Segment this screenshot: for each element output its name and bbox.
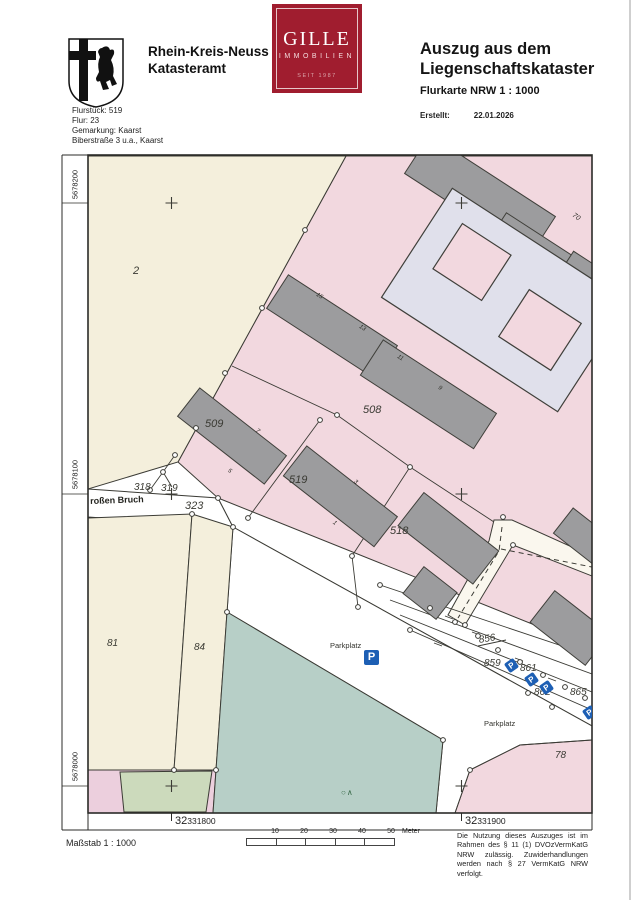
grid-easting: 331900 [477,816,505,826]
house-number-9: 9 [437,385,443,392]
tree-symbol: ○∧ [341,788,354,797]
scale-tick-label-20: 20 [294,828,314,835]
house-number-13: 13 [358,324,367,333]
grid-easting: 331800 [187,816,215,826]
scale-bar [246,838,395,846]
grid-label-north-1: 5678200 [71,165,80,205]
parcel-label-319: 319 [161,483,178,494]
house-number-5: 5 [226,468,232,475]
parcel-label-856: 856 [478,632,496,645]
parkplatz-label-2: Parkplatz [484,719,515,728]
parking-icon: P [524,672,539,687]
scan-edge-line [629,0,631,900]
parcel-label-318: 318 [134,482,151,493]
scale-tick [276,839,277,845]
scale-tick-label-30: 30 [323,828,343,835]
parcel-label-509: 509 [205,418,223,430]
parcel-label-84: 84 [194,642,205,653]
map-label-layer: 2 318 319 323 roßen Bruch 509 508 519 51… [88,155,592,813]
scale-tick-label-50: 50 [381,828,401,835]
house-number-15: 15 [315,292,324,301]
parcel-label-518: 518 [390,525,408,537]
grid-label-north-2: 5678100 [71,455,80,495]
grid-zone: 32 [465,815,477,827]
scale-label: Maßstab 1 : 1000 [66,838,136,848]
parking-icon: P [504,658,519,673]
parcel-label-865: 865 [570,687,587,698]
street-name-label: roßen Bruch [90,494,144,506]
house-number-3: 3 [352,479,358,486]
cadastral-extract-page: Rhein-Kreis-Neuss Katasteramt Flurstück:… [0,0,636,900]
parking-icon: P [582,705,592,720]
parcel-label-519: 519 [289,474,307,486]
scale-tick-label-10: 10 [265,828,285,835]
grid-label-east-1: 32331800 [175,815,216,827]
parcel-label-81: 81 [107,638,118,649]
grid-zone: 32 [175,815,187,827]
parkplatz-label-1: Parkplatz [330,641,361,650]
parking-icon: P [364,650,379,665]
parcel-label-323: 323 [185,500,203,512]
parcel-label-859: 859 [484,658,501,669]
parcel-label-78: 78 [555,750,566,761]
scale-tick [305,839,306,845]
grid-label-east-2: 32331900 [465,815,506,827]
scale-tick [335,839,336,845]
house-number-11: 11 [396,354,404,362]
legal-notice: Die Nutzung dieses Auszuges ist im Rahme… [457,831,588,878]
house-number-7: 7 [254,428,260,435]
scale-tick-label-40: 40 [352,828,372,835]
parcel-label-861: 861 [520,663,537,674]
parcel-label-2: 2 [133,265,139,277]
house-number-70: 70 [571,212,581,222]
scale-unit-label: Meter [402,828,420,835]
house-number-1: 1 [331,520,337,527]
scale-tick [364,839,365,845]
grid-label-north-3: 5678000 [71,747,80,787]
parcel-label-508: 508 [363,404,381,416]
